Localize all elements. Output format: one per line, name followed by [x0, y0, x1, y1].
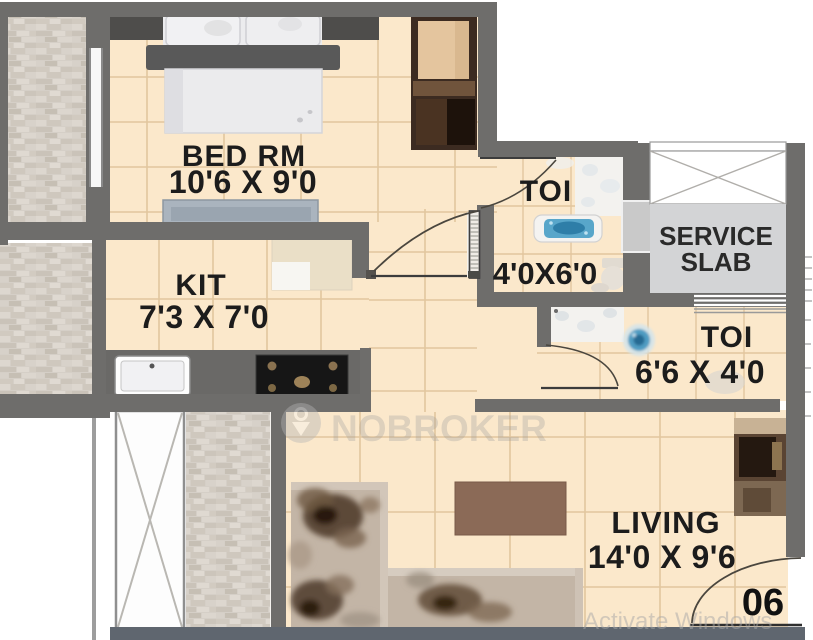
svg-text:14'0 X 9'6: 14'0 X 9'6 — [588, 539, 736, 575]
svg-text:TOI: TOI — [520, 175, 572, 208]
svg-text:TOI: TOI — [701, 321, 753, 354]
svg-text:LIVING: LIVING — [611, 505, 720, 540]
svg-text:KIT: KIT — [175, 269, 226, 302]
svg-text:Activate Windows: Activate Windows — [583, 608, 772, 635]
svg-text:4'0X6'0: 4'0X6'0 — [493, 256, 597, 291]
svg-text:SLAB: SLAB — [681, 247, 752, 277]
svg-text:NOBROKER: NOBROKER — [331, 408, 547, 449]
svg-text:6'6 X 4'0: 6'6 X 4'0 — [635, 354, 765, 390]
svg-text:7'3 X 7'0: 7'3 X 7'0 — [139, 299, 269, 335]
svg-text:10'6 X 9'0: 10'6 X 9'0 — [169, 164, 317, 200]
